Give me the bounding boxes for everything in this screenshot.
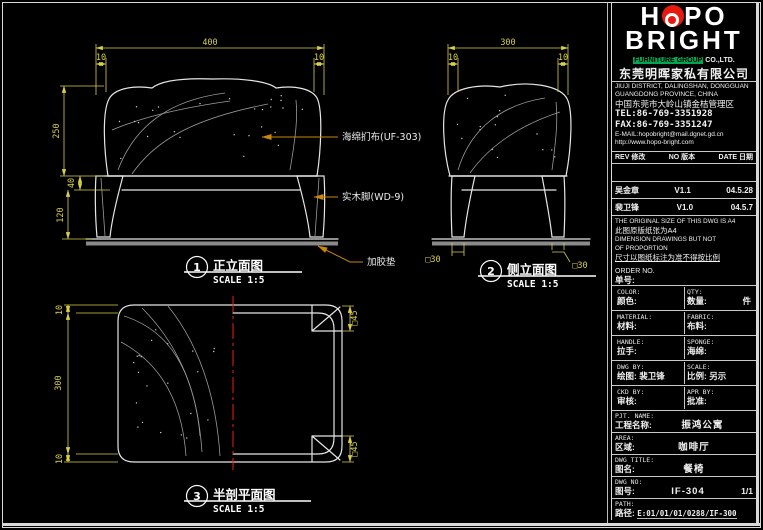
area-value: 咖啡厅 [678, 442, 710, 453]
phone-number: TEL:86-769-3351928 [615, 109, 753, 120]
order-no-en: ORDER NO. [615, 267, 753, 276]
dwg-title-row: DWG TITLE: 图名:餐椅 [612, 455, 756, 477]
rev1-version: V1.1 [674, 186, 690, 195]
rev-col: REV 修改 [615, 153, 645, 162]
date-col: DATE 日期 [719, 153, 753, 162]
dim-plan-bottom: 10 [55, 454, 65, 464]
rev2-date: 04.5.7 [731, 203, 753, 212]
path-label-cn: 路径: [615, 508, 635, 518]
annotation-fabric: 海绵扪布(UF-303) [342, 131, 421, 143]
side-label-scale: SCALE 1:5 [507, 279, 559, 290]
dwg-no-row: DWG NO: 图号:IF-3041/1 [612, 477, 756, 499]
dim-front-seat: 40 [67, 178, 77, 188]
front-left-leg [95, 176, 123, 237]
apr-label-cn: 批准: [687, 396, 751, 407]
annotation-leg: 实木脚(WD-9) [342, 191, 404, 203]
company-name-cn: 东莞明晖家私有限公司 [612, 66, 756, 82]
dim-side-margin-left: 10 [448, 53, 458, 63]
apr-label-en: APR BY: [687, 388, 751, 396]
plan-corner-block-bottom [312, 436, 342, 462]
dim-front-margin-right: 10 [314, 53, 324, 63]
scale-label-cn: 比例: [687, 371, 707, 381]
color-label-en: COLOR: [617, 288, 682, 296]
dwgby-label-en: DWG BY: [617, 363, 682, 371]
title-block: HPO BRIGHT FURNITURE GROUP CO.,LTD. 东莞明晖… [611, 3, 756, 520]
side-label-number: 2 [487, 265, 495, 278]
dwg-no-page: 1/1 [741, 486, 753, 497]
dwgby-scale-row: DWG BY: 绘图: 裴卫锋 SCALE: 比例: 另示 [612, 361, 756, 386]
area-row: AREA: 区域:咖啡厅 [612, 433, 756, 455]
handle-label-en: HANDLE: [617, 338, 682, 346]
apr-field: APR BY: 批准: [684, 387, 753, 409]
company-group-line: FURNITURE GROUP CO.,LTD. [612, 55, 756, 66]
qty-unit: 件 [742, 296, 751, 307]
path-value: E:01/01/01/0288/IF-300 [637, 509, 736, 519]
scale-field: SCALE: 比例: 另示 [684, 362, 753, 384]
rev2-name: 裴卫锋 [615, 202, 639, 213]
fabric-field: FABRIC: 布料: [684, 312, 753, 334]
qty-label-en: QTY: [687, 288, 751, 296]
material-label-en: MATERIAL: [617, 313, 682, 321]
dim-side-depth: 300 [500, 38, 515, 48]
front-label-number: 1 [193, 261, 201, 274]
address-en1: JIUJI DISTRICT, DALINGSHAN, DONGGUAN [615, 83, 753, 91]
plan-outline [118, 305, 342, 462]
rev1-name: 吴金章 [615, 185, 639, 196]
company-group-highlight: FURNITURE GROUP [633, 57, 703, 64]
dim-front-width: 400 [202, 38, 217, 48]
scale-label-en: SCALE: [687, 363, 751, 371]
project-label-en: PJT. NAME: [615, 412, 753, 420]
sponge-field: SPONGE: 海绵: [684, 337, 753, 359]
annotation-pad: 加胶垫 [367, 256, 396, 268]
front-right-leg [297, 176, 325, 237]
revision-row-2: 裴卫锋 V1.0 04.5.7 [612, 199, 756, 216]
ckd-label-cn: 审核: [617, 396, 682, 407]
note-line-3: DIMENSION DRAWINGS BUT NOT [615, 235, 753, 244]
project-value: 振鸿公寓 [681, 420, 723, 431]
dwgby-value: 裴卫锋 [639, 371, 665, 381]
dim-front-height: 250 [52, 123, 62, 138]
front-label-title: 正立面图 [213, 258, 263, 273]
side-front-leg [451, 176, 475, 237]
dwg-no-label-cn: 图号: [615, 486, 635, 497]
front-elevation-view: 400 10 10 250 40 120 海绵扪布(UF-303) 实木脚(WD… [52, 38, 421, 286]
path-row: PATH: 路径: E:01/01/01/0288/IF-300 [612, 499, 756, 519]
sponge-label-cn: 海绵: [687, 346, 751, 357]
revision-blank-row [612, 164, 756, 182]
path-label-en: PATH: [615, 500, 753, 508]
revision-header: REV 修改 NO 版本 DATE 日期 [612, 152, 756, 164]
fabric-label-en: FABRIC: [687, 313, 751, 321]
dwg-title-label-en: DWG TITLE: [615, 456, 753, 464]
project-name-row: PJT. NAME: 工程名称:振鸿公寓 [612, 411, 756, 433]
ckd-label-en: CKD BY: [617, 388, 682, 396]
dim-plan-depth: 300 [54, 375, 64, 390]
color-field: COLOR: 颜色: [615, 287, 684, 309]
plan-label-scale: SCALE 1:5 [213, 504, 265, 515]
website-url: http://www.hopo-bright.com [615, 139, 753, 147]
no-col: NO 版本 [669, 153, 695, 162]
plan-view: 10 300 10 □45 □45 3 半剖平面图 SCALE 1:5 [54, 296, 360, 515]
side-rear-leg [542, 176, 565, 237]
material-field: MATERIAL: 材料: [615, 312, 684, 334]
revision-row-1: 吴金章 V1.1 04.5.28 [612, 182, 756, 199]
dim-front-margin-left: 10 [96, 53, 106, 63]
handle-label-cn: 拉手: [617, 346, 682, 357]
company-logo: HPO BRIGHT [612, 3, 756, 55]
dwg-title-value: 餐椅 [683, 464, 704, 475]
dim-side-margin-right: 10 [558, 53, 568, 63]
dwgby-field: DWG BY: 绘图: 裴卫锋 [615, 362, 684, 384]
side-back-cushion [444, 84, 571, 176]
side-elevation-view: 300 10 10 □30 □30 2 侧立面图 SCALE 1:5 [425, 38, 596, 290]
dwgby-label-cn: 绘图: [617, 371, 637, 381]
material-fabric-row: MATERIAL: 材料: FABRIC: 布料: [612, 311, 756, 336]
dim-side-leg-left: □30 [425, 255, 440, 265]
dim-front-leg: 120 [56, 207, 66, 222]
material-label-cn: 材料: [617, 321, 682, 332]
address-en2: GUANGDONG PROVINCE, CHINA [615, 91, 753, 99]
dwg-no-value: IF-304 [671, 486, 704, 497]
dwg-title-label-cn: 图名: [615, 464, 635, 475]
front-seat-rails [107, 176, 318, 190]
dim-plan-corner-top: □45 [350, 310, 360, 325]
project-label-cn: 工程名称: [615, 420, 652, 431]
side-seat-rails [449, 176, 567, 190]
side-fabric-dots [457, 95, 556, 158]
dim-plan-top: 10 [55, 305, 65, 315]
fabric-label-cn: 布料: [687, 321, 751, 332]
dwg-no-label-en: DWG NO: [615, 478, 753, 486]
rev2-version: V1.0 [677, 203, 693, 212]
qty-label-cn: 数量: [687, 296, 707, 306]
cad-sheet: 400 10 10 250 40 120 海绵扪布(UF-303) 实木脚(WD… [0, 0, 763, 530]
ckd-apr-row: CKD BY: 审核: APR BY: 批准: [612, 386, 756, 411]
area-label-en: AREA: [615, 434, 753, 442]
scale-value: 另示 [709, 371, 726, 381]
note-line-2: 此图原版纸张为A4 [615, 226, 753, 235]
front-back-cushion [104, 79, 320, 176]
ckd-field: CKD BY: 审核: [615, 387, 684, 409]
note-line-5: 尺寸以图纸标注为准不得按比例 [615, 253, 753, 262]
email-address: E-MAIL:hopobright@mail.dgnet.gd.cn [615, 131, 753, 139]
order-no-row: ORDER NO. 单号: [612, 266, 756, 286]
rev1-date: 04.5.28 [726, 186, 753, 195]
leader-pad [318, 246, 363, 262]
sheet-border-right [756, 2, 759, 526]
logo-bright: BRIGHT [615, 28, 753, 52]
note-line-4: OF PROPORTION [615, 244, 753, 253]
side-label-title: 侧立面图 [507, 262, 557, 277]
sponge-label-en: SPONGE: [687, 338, 751, 346]
color-label-cn: 颜色: [617, 296, 682, 307]
plan-corner-block-top [312, 305, 342, 331]
dim-side-leg-right: □30 [572, 261, 587, 271]
note-line-1: THE ORIGINAL SIZE OF THIS DWG IS A4 [615, 217, 753, 226]
address-cn: 中国东莞市大岭山镇金桔管理区 [615, 99, 753, 109]
area-label-cn: 区域: [615, 442, 635, 453]
handle-sponge-row: HANDLE: 拉手: SPONGE: 海绵: [612, 336, 756, 361]
plan-label-number: 3 [193, 490, 201, 503]
order-no-cn: 单号: [615, 276, 753, 285]
front-label-scale: SCALE 1:5 [213, 275, 265, 286]
plan-fabric-dots [133, 329, 215, 439]
front-fabric-dots [119, 95, 303, 159]
notes-block: THE ORIGINAL SIZE OF THIS DWG IS A4 此图原版… [612, 216, 756, 266]
logo-red-circle-icon [662, 5, 684, 27]
address-block: JIUJI DISTRICT, DALINGSHAN, DONGGUAN GUA… [612, 82, 756, 152]
dim-plan-corner-bottom: □45 [350, 441, 360, 456]
color-qty-row: COLOR: 颜色: QTY: 数量:件 [612, 286, 756, 311]
plan-label-title: 半剖平面图 [213, 487, 276, 502]
plan-inner-frame [233, 313, 334, 454]
drawing-area: 400 10 10 250 40 120 海绵扪布(UF-303) 实木脚(WD… [0, 0, 611, 530]
fax-number: FAX:86-769-3351247 [615, 120, 753, 131]
handle-field: HANDLE: 拉手: [615, 337, 684, 359]
qty-field: QTY: 数量:件 [684, 287, 753, 309]
company-group-rest: CO.,LTD. [705, 57, 734, 64]
